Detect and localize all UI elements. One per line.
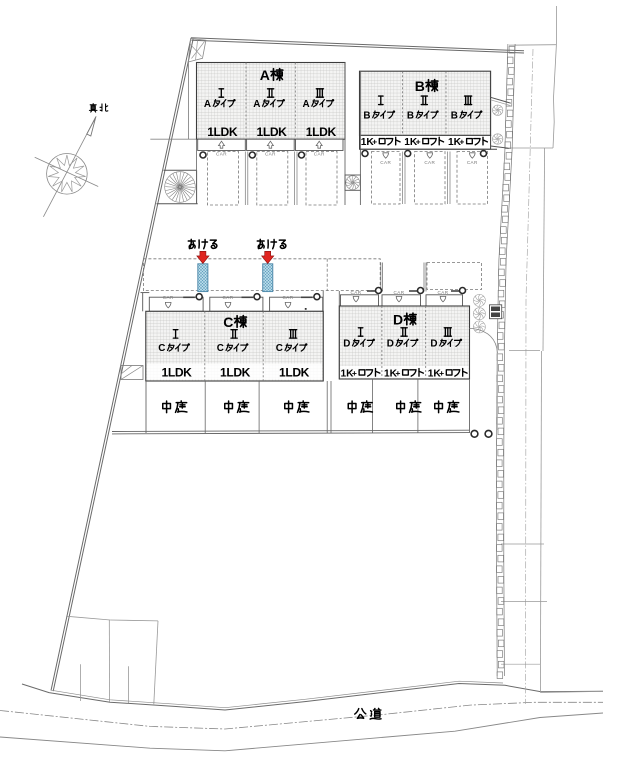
svg-text:CAR: CAR (216, 151, 227, 156)
svg-text:CAR: CAR (223, 295, 234, 300)
svg-text:CAR: CAR (380, 160, 391, 165)
svg-text:1LDK: 1LDK (279, 366, 310, 380)
svg-text:1LDK: 1LDK (220, 366, 251, 380)
svg-text:1LDK: 1LDK (306, 125, 337, 139)
svg-text:+: + (459, 137, 464, 147)
svg-text:1LDK: 1LDK (162, 366, 193, 380)
svg-text:CAR: CAR (467, 160, 478, 165)
svg-text:1LDK: 1LDK (257, 125, 288, 139)
svg-text:C: C (223, 314, 233, 330)
svg-text:CAR: CAR (265, 151, 276, 156)
svg-text:A: A (260, 67, 270, 83)
svg-text:B: B (363, 110, 370, 121)
svg-text:C: C (276, 343, 283, 354)
svg-text:B: B (415, 78, 425, 94)
svg-text:+: + (439, 368, 444, 378)
svg-text:1LDK: 1LDK (207, 125, 238, 139)
svg-text:CAR: CAR (394, 290, 405, 295)
svg-text:CAR: CAR (283, 295, 294, 300)
svg-text:A: A (303, 99, 310, 110)
svg-text:D: D (343, 339, 350, 350)
svg-text:B: B (407, 110, 414, 121)
svg-text:D: D (393, 312, 403, 328)
svg-text:CAR: CAR (438, 290, 449, 295)
svg-text:CAR: CAR (351, 290, 362, 295)
svg-text:C: C (217, 343, 224, 354)
svg-text:A: A (204, 99, 211, 110)
svg-text:CAR: CAR (424, 160, 435, 165)
svg-text:A: A (253, 99, 260, 110)
svg-text:D: D (387, 339, 394, 350)
svg-text:CAR: CAR (163, 295, 174, 300)
svg-text:+: + (395, 368, 400, 378)
svg-text:B: B (451, 110, 458, 121)
svg-text:+: + (352, 368, 357, 378)
svg-text:C: C (158, 343, 165, 354)
svg-text:D: D (430, 339, 437, 350)
svg-text:CAR: CAR (314, 151, 325, 156)
svg-text:+: + (372, 137, 377, 147)
svg-text:+: + (416, 137, 421, 147)
